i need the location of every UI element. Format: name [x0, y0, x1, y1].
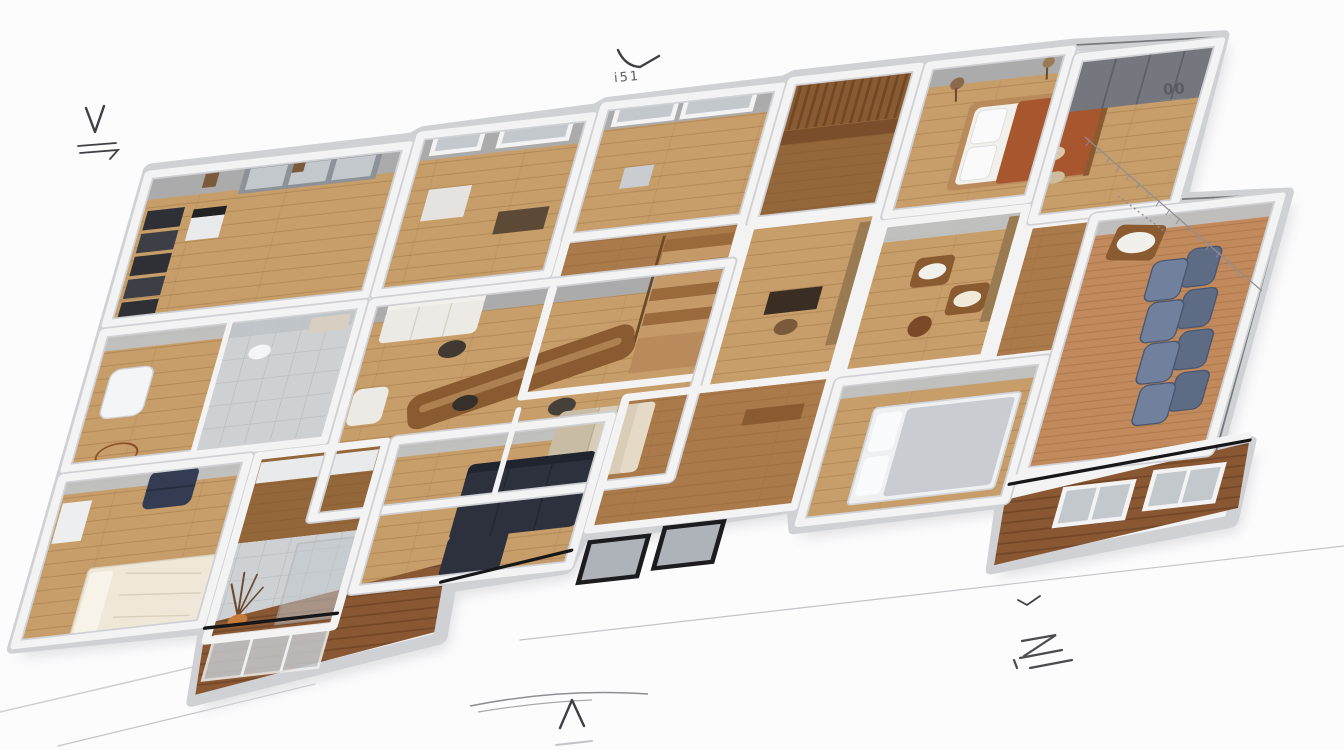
v-mark-left: [86, 106, 104, 132]
caret-arrow-bottom: [560, 700, 584, 728]
small-check-bottom-right: [1018, 596, 1040, 605]
black-framed-window: [654, 521, 724, 568]
pencil-line: [58, 684, 315, 746]
annotation-label-00: 00: [1159, 79, 1189, 100]
pencil-wisp: [470, 693, 648, 707]
floor-plan-render: i51 00: [0, 0, 1344, 750]
black-framed-window: [578, 536, 648, 583]
scene-canvas: [0, 0, 1344, 750]
z-scribble-bottom-right: [1014, 635, 1072, 668]
caret-underline: [556, 741, 592, 745]
building: [0, 10, 1344, 735]
bracket-arrow-left: [78, 143, 118, 159]
check-mark-top-center: [618, 50, 659, 67]
annotation-label-i51: i51: [613, 69, 640, 86]
